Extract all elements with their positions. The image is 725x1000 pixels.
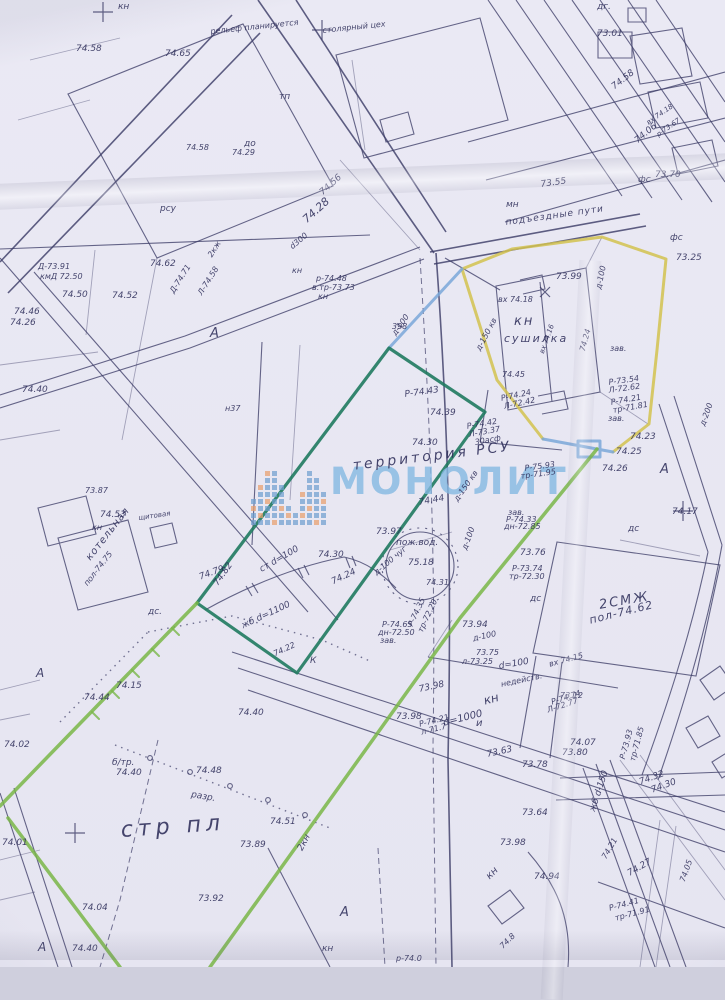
map-label: 74.58 [186,143,209,152]
map-label: 74.30 [412,438,438,448]
map-label: А [210,326,219,341]
map-label: 74.23 [630,432,656,442]
map-label: вх 74.18 [498,295,533,304]
map-label: тп [279,92,290,102]
map-label: кн [322,944,333,954]
map-label: дг. [597,2,611,12]
map-label: 74.07 [570,738,596,748]
map-label: 74.44 [84,693,110,703]
map-label: дс [530,594,541,604]
map-label: кн [514,314,534,329]
map-label: н37 [225,404,240,413]
map-label: кн [292,266,302,275]
map-label: 74.51 [270,817,296,827]
map-label: 74.45 [502,370,525,379]
monolit-logo-icon [251,447,331,525]
map-label: 74.50 [62,290,88,300]
map-label: 74.02 [4,740,30,750]
map-label: кн [318,292,328,301]
map-label: 74.26 [10,318,36,328]
map-label: кмД 72.50 [40,272,83,281]
map-label: 73.75 [476,648,499,657]
map-label: зав. [380,636,396,645]
map-label: дс. [148,607,162,617]
map-label: 74.40 [22,385,48,395]
map-label: 73.80 [562,748,588,758]
map-label: 73.25 [676,253,702,263]
map-label: мн [506,200,519,210]
map-label: фс [670,233,683,243]
map-label: 73.76 [520,548,546,558]
map-label: 74.58 [76,44,102,54]
map-label: рсу [160,204,176,214]
map-label: 74.40 [116,768,142,778]
map-label: л-73.25 [462,657,493,666]
map-label: 74.01 [2,838,28,848]
map-label: р-74.0 [396,954,422,963]
map-label: 73.87 [85,486,108,495]
map-label: Д-73.91 [38,262,70,271]
map-label: К [310,656,316,666]
map-label: 75.18 [408,558,434,568]
map-label: 74.48 [196,766,222,776]
collector-road [232,532,725,852]
map-label: 73.78 [522,760,548,770]
scanned-map-photo: МОНОЛИТ кнстолярный цехрельеф планируетс… [0,0,725,967]
map-label: кн [118,2,129,12]
map-label: кн [92,523,102,532]
map-label: дн-72.85 [504,522,541,531]
map-label: 74.17 [672,507,698,517]
map-label: А [660,462,669,477]
map-label: 74.15 [116,681,142,691]
map-label: б/тр. [112,758,134,768]
map-label: 73.64 [522,808,548,818]
map-label: сушилка [504,332,568,345]
map-label: 74.65 [165,49,191,59]
map-label: 73.99 [556,272,582,282]
map-label: 74.94 [534,872,560,882]
map-label: 73.89 [240,840,266,850]
map-label: 73.01 [597,29,623,39]
map-label: тр-72.30 [509,572,545,581]
map-label: 74.62 [150,259,176,269]
map-label: 73.70 [655,170,681,180]
map-label: в.тр-73.73 [312,283,355,292]
map-label: 73.97 [376,527,402,537]
map-label: 73.98 [500,838,526,848]
map-label: 73.92 [198,894,224,904]
map-label: 74.39 [430,408,456,418]
map-label: зав. [608,414,624,423]
map-label: 74.52 [112,291,138,301]
map-label: А [38,940,46,954]
map-label: 74.04 [82,903,108,913]
map-label: 74.40 [238,708,264,718]
map-label: 74.31 [426,578,449,587]
roads-top-right [430,0,725,264]
map-label: дс [628,524,639,534]
map-label: р-74.48 [316,274,347,283]
map-label: фс [638,175,651,185]
map-label: 73.94 [462,620,488,630]
map-label: 74.40 [72,944,98,954]
map-label: 74.46 [14,307,40,317]
map-label: А [36,666,44,680]
map-label: 74.26 [602,464,628,474]
map-label: 74.29 [232,148,255,157]
map-label: 74.30 [318,550,344,560]
map-label: зав. [610,344,626,353]
map-label: А [340,905,349,920]
map-label: 74.25 [616,447,642,457]
